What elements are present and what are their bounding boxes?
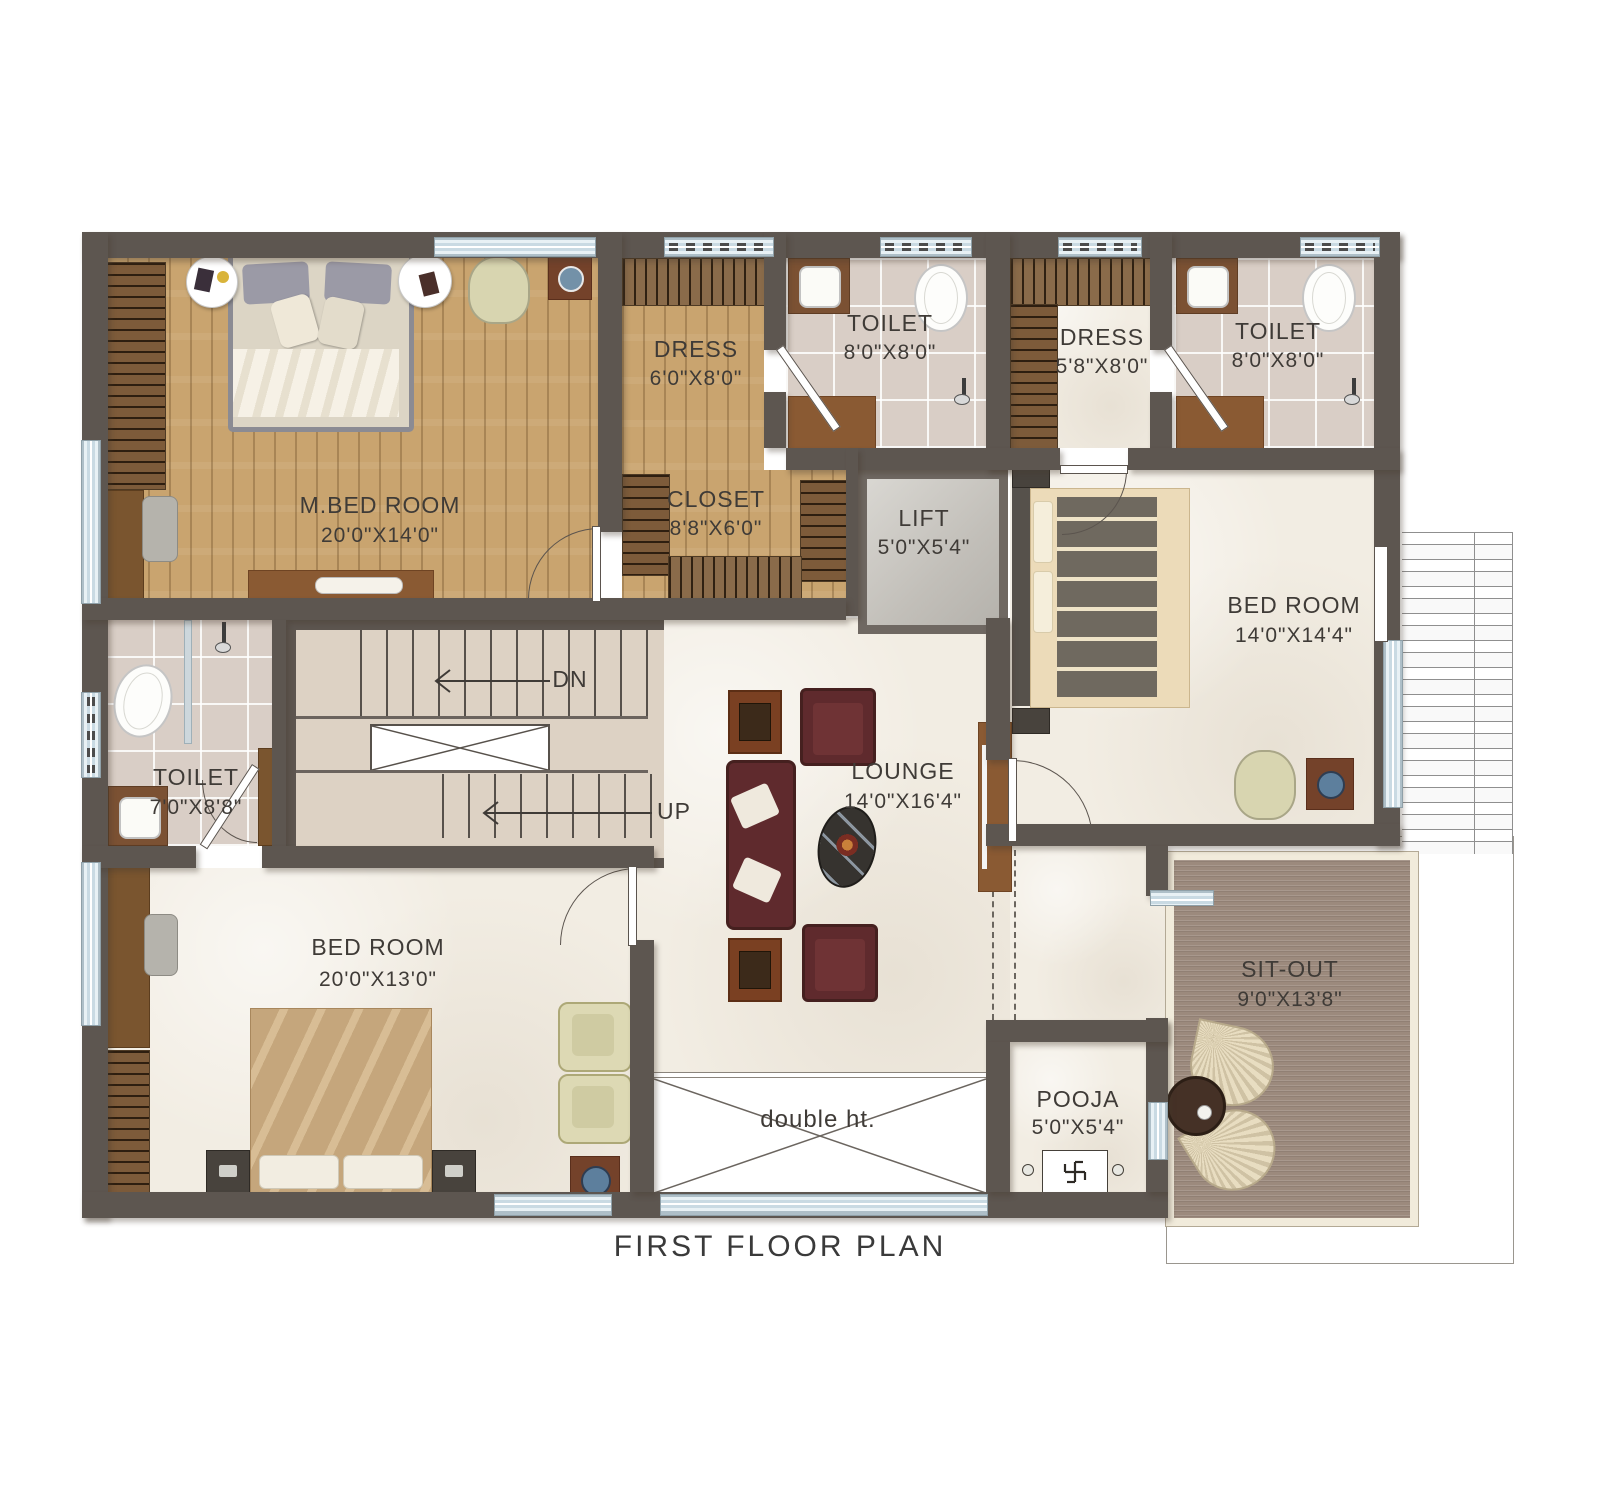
bedroom-right-headboard — [1012, 488, 1030, 706]
wall-pooja-top — [986, 1020, 1168, 1042]
pooja-dot-2 — [1112, 1164, 1124, 1176]
lounge-plant-table-2 — [728, 938, 782, 1002]
label-closet-dims: 8'8"X6'0" — [670, 517, 763, 541]
master-side-table-2 — [398, 254, 452, 308]
master-bed — [228, 250, 414, 432]
wall-pooja-left — [986, 1042, 1010, 1192]
door-leaf-right-wall — [1374, 546, 1388, 642]
toilet2-sink — [1187, 266, 1229, 308]
sit-out-round-table — [1166, 1076, 1226, 1136]
door-pooja-sitout — [1148, 1102, 1168, 1160]
label-lift-dims: 5'0"X5'4" — [878, 536, 971, 560]
wall-mid-horizontal-2 — [1128, 448, 1400, 470]
toilet3-shower-head-icon — [215, 642, 231, 653]
label-toilet-3-dims: 7'0"X8'8" — [150, 796, 243, 820]
wall-master-bottom — [82, 598, 846, 620]
master-bed-blanket — [233, 349, 399, 417]
closet-rack-bottom — [668, 556, 802, 600]
lounge-armchair-1 — [800, 688, 876, 766]
lounge-sofa — [726, 760, 796, 930]
lounge-plant-table-1 — [728, 690, 782, 754]
pooja-swastika-plate — [1042, 1150, 1108, 1194]
wall-bottom — [82, 1192, 1168, 1218]
pergola-slats — [1402, 532, 1513, 854]
nightstand-lamp — [445, 1165, 463, 1177]
dress2-wardrobe-top — [1010, 258, 1152, 306]
floor-corridor-right — [1010, 846, 1168, 1020]
bedroom-right-side-table — [1306, 758, 1354, 810]
label-lounge: LOUNGE — [851, 758, 954, 785]
label-bed-room-right: BED ROOM — [1227, 592, 1360, 619]
dn-arrow-icon — [430, 666, 555, 696]
bed-pillow — [343, 1155, 423, 1189]
bedroom-bottom-nightstand-1 — [206, 1150, 250, 1194]
label-lounge-dims: 14'0"X16'4" — [844, 790, 962, 814]
plan-title: FIRST FLOOR PLAN — [614, 1230, 947, 1264]
toilet1-sink — [799, 266, 841, 308]
dress2-wardrobe-left — [1010, 304, 1058, 450]
dress2-door-leaf — [1060, 465, 1128, 474]
label-sit-out: SIT-OUT — [1241, 956, 1339, 983]
table-plate — [217, 271, 229, 283]
label-m-bed-room-dims: 20'0"X14'0" — [321, 524, 439, 548]
master-side-table-1 — [186, 256, 238, 308]
lounge-armchair-2 — [802, 924, 878, 1002]
nightstand-lamp — [219, 1165, 237, 1177]
toilet1-counter — [788, 258, 850, 314]
sill-bedroom-bottom — [494, 1194, 612, 1216]
label-dress-2-dims: 5'8"X8'0" — [1056, 355, 1149, 379]
first-floor-plan: M.BED ROOM 20'0"X14'0" DRESS 6'0"X8'0" T… — [0, 0, 1600, 1487]
closet-rack-right — [800, 480, 848, 582]
wall-dress2-toilet2-a — [1150, 232, 1172, 350]
window-top-master — [434, 237, 596, 257]
closet-rack-left — [622, 474, 670, 576]
bedroom-right-chair — [1234, 750, 1296, 820]
tv-screen — [982, 745, 987, 869]
label-double-height: double ht. — [760, 1106, 875, 1134]
label-dress-1: DRESS — [654, 336, 738, 363]
wall-stairs-bedroom-b — [262, 846, 654, 868]
wall-bedroomR-bottom — [986, 824, 1400, 846]
label-pooja: POOJA — [1037, 1086, 1120, 1113]
bedroom-right-bed — [1030, 488, 1190, 708]
wall-toilet3-stairs — [272, 620, 286, 848]
toilet3-shower-glass — [184, 620, 192, 744]
label-sit-out-dims: 9'0"X13'8" — [1237, 988, 1342, 1012]
dress1-wardrobe — [622, 258, 766, 306]
sill-double-height — [660, 1194, 988, 1216]
stair-divider-1 — [296, 716, 648, 719]
ventilator-top-dress1 — [664, 237, 774, 257]
up-arrow-icon — [478, 798, 658, 828]
wall-toilet1-dress2 — [986, 232, 1010, 470]
ventilator-top-dress2 — [1058, 237, 1142, 257]
label-toilet-1-dims: 8'0"X8'0" — [844, 341, 937, 365]
label-toilet-1: TOILET — [847, 310, 933, 337]
chair-cushion — [572, 1014, 614, 1056]
sofa-cushion-2 — [732, 856, 782, 903]
sofa-cushion-1 — [730, 782, 780, 829]
ventilator-top-toilet1 — [880, 237, 972, 257]
label-stairs-up: UP — [657, 798, 691, 825]
chair-cushion — [572, 1086, 614, 1128]
label-bed-room-right-dims: 14'0"X14'4" — [1235, 624, 1353, 648]
wall-closet-lift-fill — [846, 448, 858, 616]
master-wall-art — [548, 256, 592, 300]
pooja-dot-1 — [1022, 1164, 1034, 1176]
toilet1-shower-head-icon — [954, 394, 970, 405]
side-table-bowl — [1317, 771, 1345, 799]
wall-dress1-toilet1-b — [764, 392, 786, 448]
bedroom-bottom-bed — [250, 1008, 432, 1194]
stair-divider-2 — [296, 770, 648, 773]
table-cup — [1197, 1105, 1212, 1120]
bedroom-bottom-rack — [106, 1050, 150, 1194]
ventilator-top-toilet2 — [1300, 237, 1380, 257]
dresser-tray — [315, 577, 403, 594]
table-book — [194, 268, 214, 293]
master-bed-cushion-1 — [269, 292, 321, 349]
bedroom-right-door-leaf — [1008, 758, 1017, 842]
bed-pillow — [1033, 571, 1053, 633]
bed-pillow — [1033, 501, 1053, 563]
wall-sitout-left-a — [1146, 846, 1168, 896]
master-bed-cushion-2 — [316, 295, 365, 350]
label-stairs-dn: DN — [552, 666, 587, 693]
window-left-master — [81, 440, 101, 604]
master-chair — [468, 256, 530, 324]
coffee-table-plate — [835, 832, 860, 857]
wall-master-dress — [598, 232, 622, 532]
label-dress-2: DRESS — [1060, 324, 1144, 351]
master-door-leaf — [592, 526, 601, 602]
label-bed-room-bottom: BED ROOM — [311, 934, 444, 961]
label-bed-room-bottom-dims: 20'0"X13'0" — [319, 968, 437, 992]
window-right-bedroom — [1383, 640, 1403, 808]
label-dress-1-dims: 6'0"X8'0" — [650, 367, 743, 391]
label-pooja-dims: 5'0"X5'4" — [1032, 1116, 1125, 1140]
bedroom-right-nightstand-2 — [1012, 708, 1050, 734]
wall-lounge-bedroomR — [986, 618, 1010, 760]
label-lift: LIFT — [898, 505, 949, 532]
window-left-bedroom — [81, 862, 101, 1026]
label-toilet-3: TOILET — [153, 764, 239, 791]
wall-art-circle — [558, 266, 584, 292]
bedroom-bottom-chair-2 — [558, 1074, 632, 1144]
stair-rail-void — [370, 724, 550, 772]
staircase — [286, 620, 664, 868]
toilet2-counter — [1176, 258, 1238, 314]
open-boundary-dashed-2 — [1014, 850, 1016, 1020]
swastika-icon — [1062, 1159, 1088, 1185]
label-toilet-2-dims: 8'0"X8'0" — [1232, 349, 1325, 373]
bedroom-bottom-door-leaf — [628, 866, 637, 946]
wall-mid-horizontal-1 — [786, 448, 1060, 470]
label-toilet-2: TOILET — [1235, 318, 1321, 345]
master-wardrobe — [106, 262, 166, 490]
label-m-bed-room: M.BED ROOM — [300, 492, 461, 519]
master-dresser — [248, 570, 434, 600]
ventilator-left-toilet3 — [81, 692, 101, 778]
table-book — [419, 271, 440, 296]
master-side-panel — [106, 490, 144, 600]
bedroom-bottom-nightstand-2 — [432, 1150, 476, 1194]
wall-bedroom-lounge — [630, 940, 654, 1192]
bedroom-bottom-corner-chair — [144, 914, 178, 976]
bed-pillow — [259, 1155, 339, 1189]
wall-dress2-toilet2-b — [1150, 392, 1172, 448]
threshold-sitout-top — [1150, 890, 1214, 906]
master-corner-chair — [142, 496, 178, 562]
toilet2-shower-head-icon — [1344, 394, 1360, 405]
label-closet: CLOSET — [667, 486, 765, 513]
bedroom-bottom-chair-1 — [558, 1002, 632, 1072]
